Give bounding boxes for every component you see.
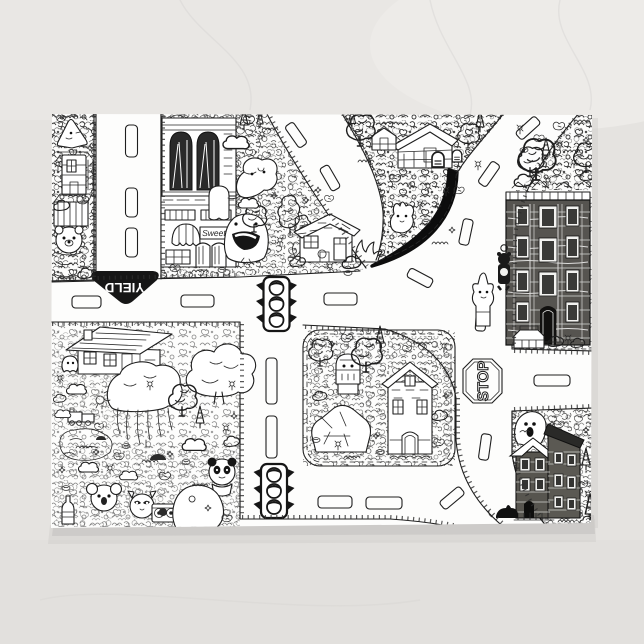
svg-text:YIELD: YIELD <box>104 280 144 295</box>
svg-text:STOP: STOP <box>475 361 492 402</box>
